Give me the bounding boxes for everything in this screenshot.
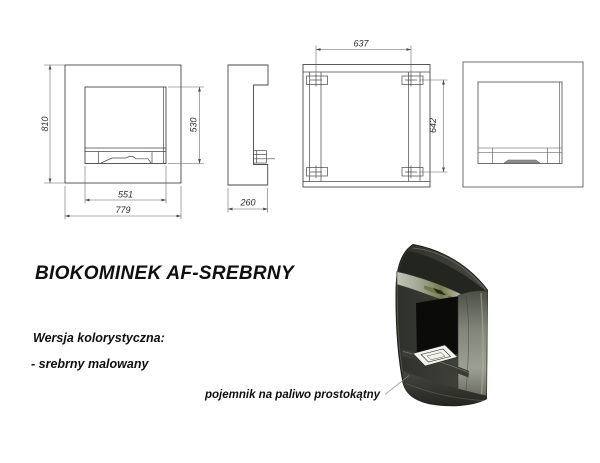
color-version-heading: Wersja kolorystyczna: <box>33 331 165 345</box>
dim-overall-width: 779 <box>115 205 130 215</box>
dim-depth: 260 <box>239 198 255 208</box>
burner-outline <box>101 157 151 164</box>
dim-overall-height: 810 <box>40 116 50 131</box>
dim-mount-height: 642 <box>428 118 438 133</box>
product-render-3d <box>396 245 488 406</box>
rear-mount-view <box>303 65 430 188</box>
side-view <box>228 65 275 185</box>
side-shelf-bracket <box>254 151 276 164</box>
fuel-container-callout: pojemnik na paliwo prostokątny <box>205 389 380 401</box>
burner-tray-front <box>504 160 540 163</box>
front-view <box>65 65 181 183</box>
dim-mount-width: 637 <box>353 39 369 49</box>
mount-tabs <box>307 76 424 176</box>
spec-sheet: 810 530 551 779 260 <box>0 0 600 463</box>
dim-glass-height: 530 <box>189 117 199 132</box>
dim-glass-width: 551 <box>118 190 133 200</box>
color-version-option: - srebrny malowany <box>31 357 148 371</box>
product-title: BIOKOMINEK AF-SREBRNY <box>35 263 294 285</box>
mount-hole-crosses <box>310 74 417 178</box>
front-view-plain <box>463 62 583 187</box>
rear-view-arrowheads <box>316 48 445 172</box>
